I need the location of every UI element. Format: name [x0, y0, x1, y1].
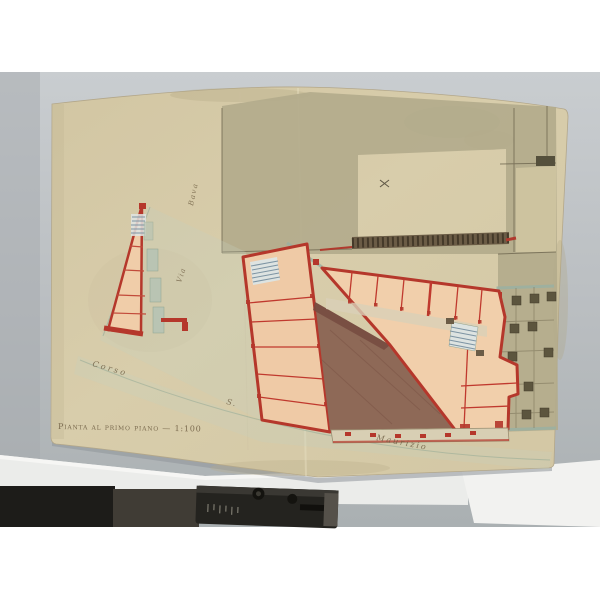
archival-photo-page: Pianta al primo piano — 1:100 Corso S. M…	[0, 0, 600, 600]
wedge-apex-pier	[139, 203, 146, 209]
photo-of-floor-plan: Pianta al primo piano — 1:100 Corso S. M…	[0, 0, 600, 600]
dark-shadow-mid	[113, 489, 199, 527]
khaki-parcel	[516, 166, 556, 252]
dark-annex-block	[536, 156, 555, 166]
copy-stand-plate	[195, 486, 338, 529]
left-wing-stair	[250, 257, 280, 285]
bottom-shadow-objects	[0, 486, 339, 529]
red-boundary-tip	[506, 238, 516, 240]
plate-end-block	[323, 493, 338, 526]
dark-shadow-left	[0, 486, 115, 527]
